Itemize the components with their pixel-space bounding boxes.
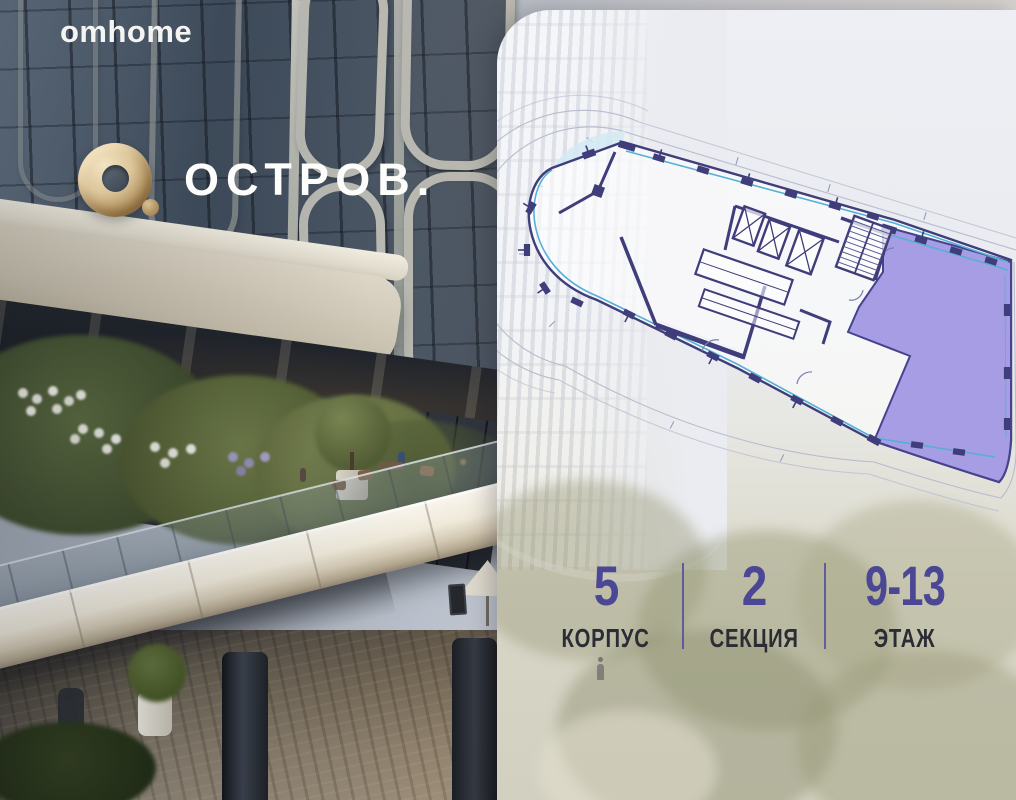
menu-board <box>448 583 467 615</box>
project-name: ОСТРОВ. <box>184 154 436 206</box>
gold-torus-o-icon <box>78 143 152 217</box>
flower-cluster <box>228 452 238 462</box>
flower-cluster <box>78 424 88 434</box>
planter-plant <box>128 644 186 702</box>
stats-row: 5 КОРПУС 2 СЕКЦИЯ 9-13 ЭТАЖ <box>531 546 982 654</box>
floor-plan <box>497 10 1016 800</box>
tree-trunk <box>350 452 354 472</box>
column <box>452 638 497 800</box>
project-logo: ОСТРОВ. <box>78 142 436 218</box>
info-panel: 5 КОРПУС 2 СЕКЦИЯ 9-13 ЭТАЖ <box>497 10 1016 800</box>
torus-hole <box>102 165 129 192</box>
umbrella-pole <box>486 596 489 626</box>
brand-logo: omhome <box>60 14 192 50</box>
person <box>300 468 306 482</box>
stat-section: 2 СЕКЦИЯ <box>686 558 822 654</box>
stat-building: 5 КОРПУС <box>531 558 680 654</box>
flower-cluster <box>150 442 160 452</box>
stats-divider <box>824 563 826 649</box>
stat-building-label: КОРПУС <box>562 623 650 654</box>
stat-section-value: 2 <box>742 558 767 614</box>
stat-section-label: СЕКЦИЯ <box>709 623 798 654</box>
page: omhome ОСТРОВ. <box>0 0 1016 800</box>
logo-dot-icon <box>142 199 159 216</box>
stat-floors: 9-13 ЭТАЖ <box>828 558 982 654</box>
stat-floors-value: 9-13 <box>865 558 945 614</box>
stats-divider <box>682 563 684 649</box>
stat-floors-label: ЭТАЖ <box>874 623 936 654</box>
stat-building-value: 5 <box>593 558 618 614</box>
column <box>222 652 268 800</box>
flower-cluster <box>18 388 28 398</box>
